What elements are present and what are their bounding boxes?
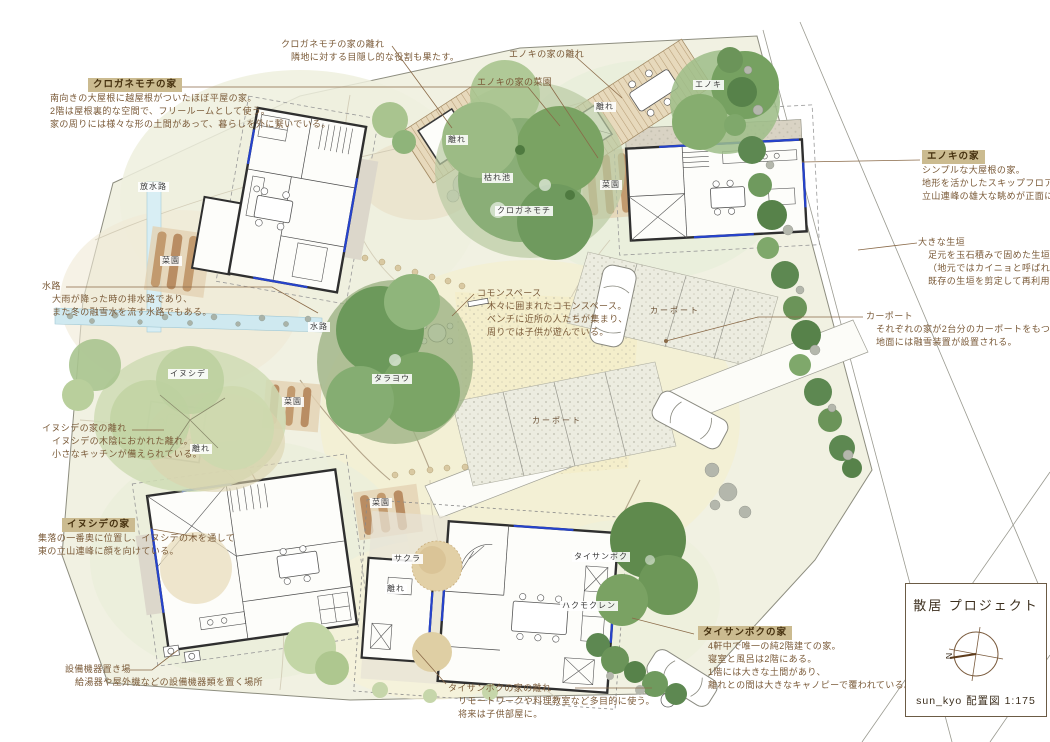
plan-label-saien-enoki: 菜園: [600, 180, 622, 190]
sheet-title: sun_kyo 配置図 1:175: [906, 693, 1046, 708]
callout-big-hedge: 大きな生垣 足元を玉石積みで固めた生垣防風林。 （地元ではカイニョと呼ばれている…: [918, 236, 1050, 288]
callout-common-space: コモンスペース 木々に囲まれたコモンスペース。 ベンチに近所の人たちが集まり、 …: [477, 287, 628, 339]
plan-label-hanare-taisanboku: 離れ: [385, 584, 407, 594]
plan-label-hakumokuren: ハクモクレン: [560, 601, 618, 611]
plan-label-saien-nw: 菜園: [160, 256, 182, 266]
callout-kuroganemochi-house-label: クロガネモチの家: [88, 78, 182, 92]
plan-label-tarayo: タラヨウ: [372, 374, 412, 384]
plan-label-carport-b: カーポート: [530, 416, 584, 426]
callout-taisanboku-house: タイサンボクの家 4軒中で唯一の純2階建ての家。 寝室と風呂は2階にある。 1階…: [698, 626, 913, 692]
plan-label-saien-mid: 菜園: [282, 397, 304, 407]
plan-label-sakura: サクラ: [392, 554, 423, 564]
title-block: 散居 プロジェクト N sun_kyo 配置図 1:175: [905, 583, 1047, 717]
project-title: 散居 プロジェクト: [906, 595, 1046, 614]
plan-label-inushide: イヌシデ: [168, 369, 208, 379]
callout-enoki-hanare: エノキの家の離れ: [509, 48, 584, 61]
plan-label-kuroganemochi: クロガネモチ: [495, 206, 553, 216]
callout-carport: カーポート それぞれの家が2台分のカーポートをもつ。 地面には融雪装置が設置され…: [866, 310, 1050, 349]
site-plan-canvas: クロガネモチの家 南向きの大屋根に越屋根がついたほぼ平屋の家。 2階は屋根裏的な…: [0, 0, 1050, 742]
callout-inushide-house: イヌシデの家 集落の一番奥に位置し、イヌシデの木を通して 東の立山連峰に顔を向け…: [38, 518, 235, 558]
north-compass-icon: N: [946, 624, 1006, 684]
plan-label-carport-a: カーポート: [648, 306, 702, 316]
callout-suiro: 水路 大雨が降った時の排水路であり、 また冬の融雪水を流す水路でもある。: [42, 280, 212, 319]
plan-label-hanare-enoki: 離れ: [594, 102, 616, 112]
callout-enoki-saien: エノキの家の菜園: [477, 76, 552, 89]
callout-inushide-hanare: イヌシデの家の離れ イヌシデの木陰におかれた離れ。 小さなキッチンが備えられてい…: [42, 422, 202, 461]
callout-taisanboku-hanare: タイサンボクの家の離れ リモートワークや料理教室など多目的に使う。 将来は子供部…: [448, 682, 655, 721]
plan-label-kareike: 枯れ池: [482, 173, 513, 183]
callout-kuroganemochi-house: クロガネモチの家 南向きの大屋根に越屋根がついたほぼ平屋の家。 2階は屋根裏的な…: [50, 78, 331, 131]
callout-enoki-house: エノキの家 シンプルな大屋根の家。 地形を活かしたスキップフロアー構成で 立山連…: [922, 150, 1050, 203]
callout-setsubi: 設備機器置き場 給湯器や屋外機などの設備機器類を置く場所: [65, 663, 263, 689]
callout-kuroganemochi-hanare: クロガネモチの家の離れ 隣地に対する目隠し的な役割も果たす。: [281, 38, 459, 64]
plan-label-taisanboku: タイサンボク: [572, 552, 630, 562]
plan-label-hanare-inushide: 離れ: [190, 444, 212, 454]
north-letter: N: [946, 653, 954, 660]
plan-label-hanare-kurogane: 離れ: [446, 135, 468, 145]
plan-label-hosuiro: 放水路: [138, 182, 169, 192]
plan-label-suiro: 水路: [308, 322, 330, 332]
plan-label-saien-s: 菜園: [370, 498, 392, 508]
plan-label-enoki: エノキ: [693, 80, 724, 90]
